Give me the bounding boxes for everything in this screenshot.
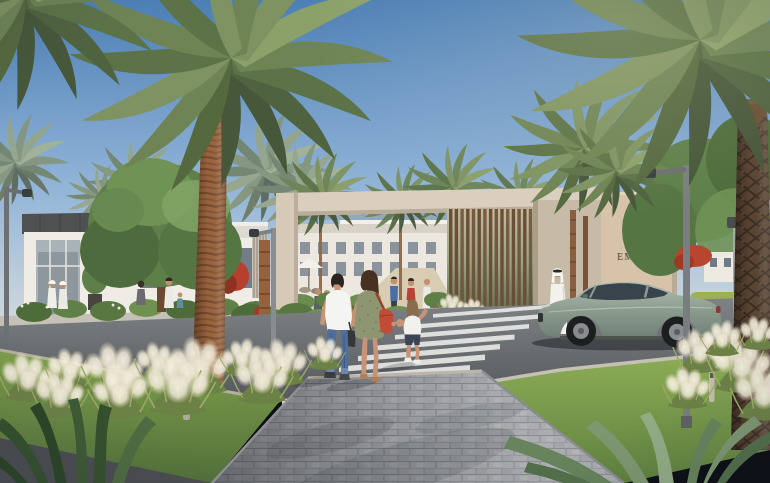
vignette [0,0,770,483]
rendering-canvas: EMAAR [0,0,770,483]
community-entrance-rendering: EMAAR [0,0,770,483]
